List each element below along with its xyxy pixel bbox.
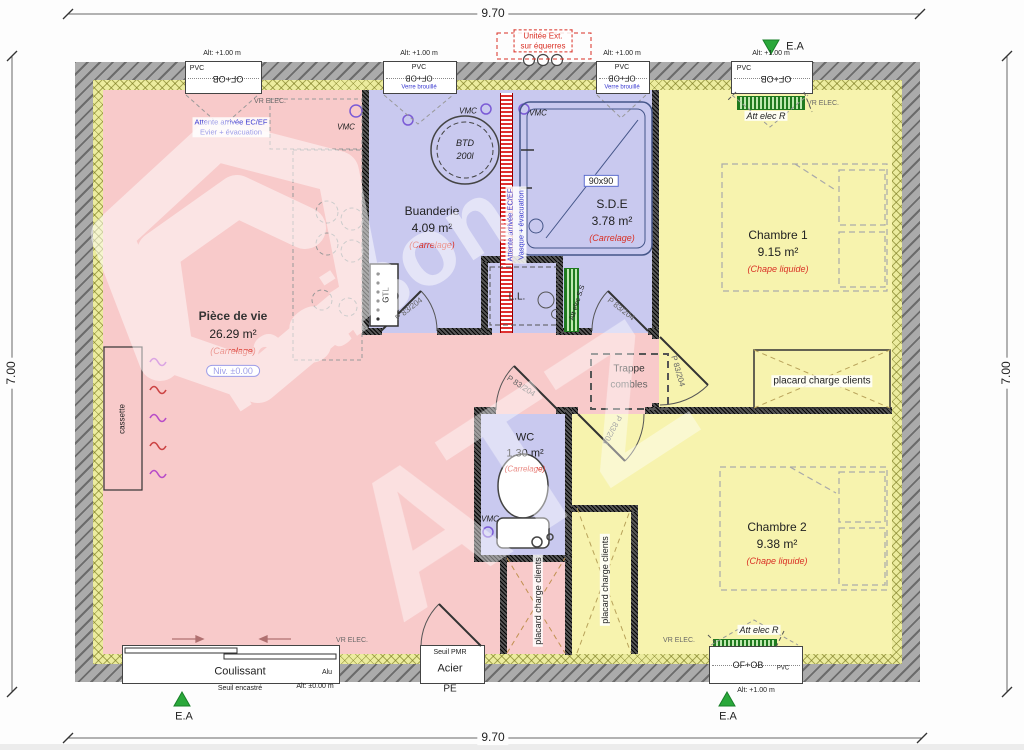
vmc-label: VMC — [459, 106, 477, 115]
window-alt-label: Alt: +1.00 m — [752, 50, 790, 58]
room-area: 26.29 m² — [209, 328, 256, 342]
entry-material: Acier — [437, 663, 462, 676]
partition — [500, 558, 507, 654]
dim-width-top: 9.70 — [477, 7, 508, 21]
btd-label-line2: 200l — [456, 151, 473, 161]
window-type-label: OF+OB — [608, 73, 635, 82]
partition — [362, 90, 369, 333]
window-alt-label: Alt: +1.00 m — [603, 50, 641, 58]
window-material-label: PVC — [737, 65, 751, 73]
room-level-badge: Niv. ±0.00 — [206, 365, 260, 377]
placard-label-chambre2: placard charge clients — [600, 534, 610, 626]
placard-label-chambre1: placard charge clients — [771, 375, 872, 387]
vr-elec-label: VR ELEC. — [807, 100, 839, 108]
room-finish: (Carrelage) — [589, 233, 635, 243]
room-area: 4.09 m² — [412, 222, 453, 236]
attente-line2: Evier + évacuation — [200, 127, 262, 136]
room-area: 3.78 m² — [592, 215, 633, 229]
exterior-unit-line1: Unitée Ext. — [523, 31, 562, 40]
window-material-label: PVC — [412, 64, 426, 72]
page-edge — [0, 744, 1024, 750]
window-type-label: OF+OB — [405, 73, 432, 82]
window-material-label: PVC — [190, 65, 204, 73]
trappe-label-line2: combles — [610, 379, 647, 391]
window-material-label: PVC — [615, 64, 629, 72]
shower-size-label: 90x90 — [584, 175, 619, 187]
room-area: 9.15 m² — [758, 246, 799, 260]
partition — [645, 407, 892, 414]
exterior-unit-note: Unitée Ext. sur équerres — [514, 29, 573, 52]
partition — [652, 90, 659, 333]
room-finish: (Carrelage) — [505, 464, 545, 473]
room-name-buanderie: Buanderie — [405, 205, 460, 219]
sliding-door-material: Alu — [322, 669, 332, 677]
vr-elec-label: VR ELEC. — [336, 637, 368, 645]
window-type-label: OF+OB — [733, 660, 764, 670]
room-name-sde: S.D.E — [596, 198, 627, 212]
partition — [565, 407, 572, 655]
dim-height-right: 7.00 — [1000, 357, 1014, 388]
entry-threshold: Seuil PMR — [433, 649, 466, 657]
att-elec-r-label: Att elec R — [737, 625, 780, 635]
sliding-door-alt: Alt: ±0.00 m — [296, 683, 333, 691]
attente-vasque-note: Attente arrivée EC/EF Vasque + évacuatio… — [506, 187, 527, 264]
att-elec-hatch-top — [737, 96, 805, 110]
window-glass-label: Verre brouillé — [604, 85, 639, 92]
window-material-label: PVC — [777, 666, 789, 673]
entry-type: PE — [443, 683, 456, 695]
room-name-piece-de-vie: Pièce de vie — [199, 310, 268, 324]
room-name-chambre1: Chambre 1 — [748, 229, 807, 243]
room-finish: (Carrelage) — [210, 346, 256, 356]
room-finish: (Chape liquide) — [746, 556, 807, 566]
room-name-chambre2: Chambre 2 — [747, 521, 806, 535]
washing-machine-label: L.L. — [509, 291, 526, 303]
partition — [631, 508, 638, 654]
sliding-door-threshold: Seuil encastré — [218, 685, 262, 693]
sliding-door-label: Coulissant — [214, 666, 265, 679]
dim-height-left: 7.00 — [5, 357, 19, 388]
partition — [572, 505, 638, 512]
partition — [556, 262, 563, 333]
partition — [474, 555, 572, 562]
vmc-label: VMC — [529, 108, 547, 117]
window-type-label: OF+OB — [761, 74, 792, 84]
attente-line1: Attente arrivée EC/EF — [195, 117, 268, 126]
btd-label-line1: BTD — [456, 138, 474, 148]
ea-label-bottom-right: E.A — [719, 711, 737, 724]
window-glass-label: Verre brouillé — [401, 85, 436, 92]
partition — [481, 262, 488, 333]
ea-label-top: E.A — [786, 41, 804, 54]
vr-elec-label: VR ELEC. — [254, 98, 286, 106]
vmc-label: VMC — [481, 514, 499, 523]
attente-evier-note: Attente arrivée EC/EF Evier + évacuation — [193, 117, 270, 137]
room-fill-chambre2 — [572, 414, 892, 654]
cassette-label: cassette — [117, 404, 126, 434]
room-finish: (Chape liquide) — [747, 264, 808, 274]
ea-label-bottom-left: E.A — [175, 711, 193, 724]
room-finish: (Carrelage) — [409, 240, 455, 250]
window-alt-label: Alt: +1.00 m — [737, 687, 775, 695]
attente-line2: Vasque + évacuation — [516, 190, 525, 260]
room-area: 1.30 m² — [506, 448, 543, 461]
exterior-unit-line2: sur équerres — [521, 41, 566, 50]
dim-width-bottom: 9.70 — [477, 731, 508, 745]
window-alt-label: Alt: +1.00 m — [203, 50, 241, 58]
vr-elec-label: VR ELEC. — [663, 637, 695, 645]
room-area: 9.38 m² — [757, 538, 798, 552]
vmc-label: VMC — [337, 122, 355, 131]
window-type-label: OF+OB — [213, 74, 244, 84]
gtl-label: GTL — [381, 287, 390, 303]
trappe-label-line1: Trappe — [613, 363, 644, 375]
attente-line1: Attente arrivée EC/EF — [506, 189, 515, 262]
att-elec-r-label: Att elec R — [744, 111, 787, 121]
window-alt-label: Alt: +1.00 m — [400, 50, 438, 58]
placard-label-hall: placard charge clients — [533, 555, 543, 647]
partition — [474, 407, 481, 562]
room-name-wc: WC — [516, 432, 534, 445]
floor-plan-canvas: Alt: +1.00 m PVC OF+OB Alt: +1.00 m PVC … — [0, 0, 1024, 750]
partition — [652, 333, 659, 339]
partition — [362, 328, 382, 335]
